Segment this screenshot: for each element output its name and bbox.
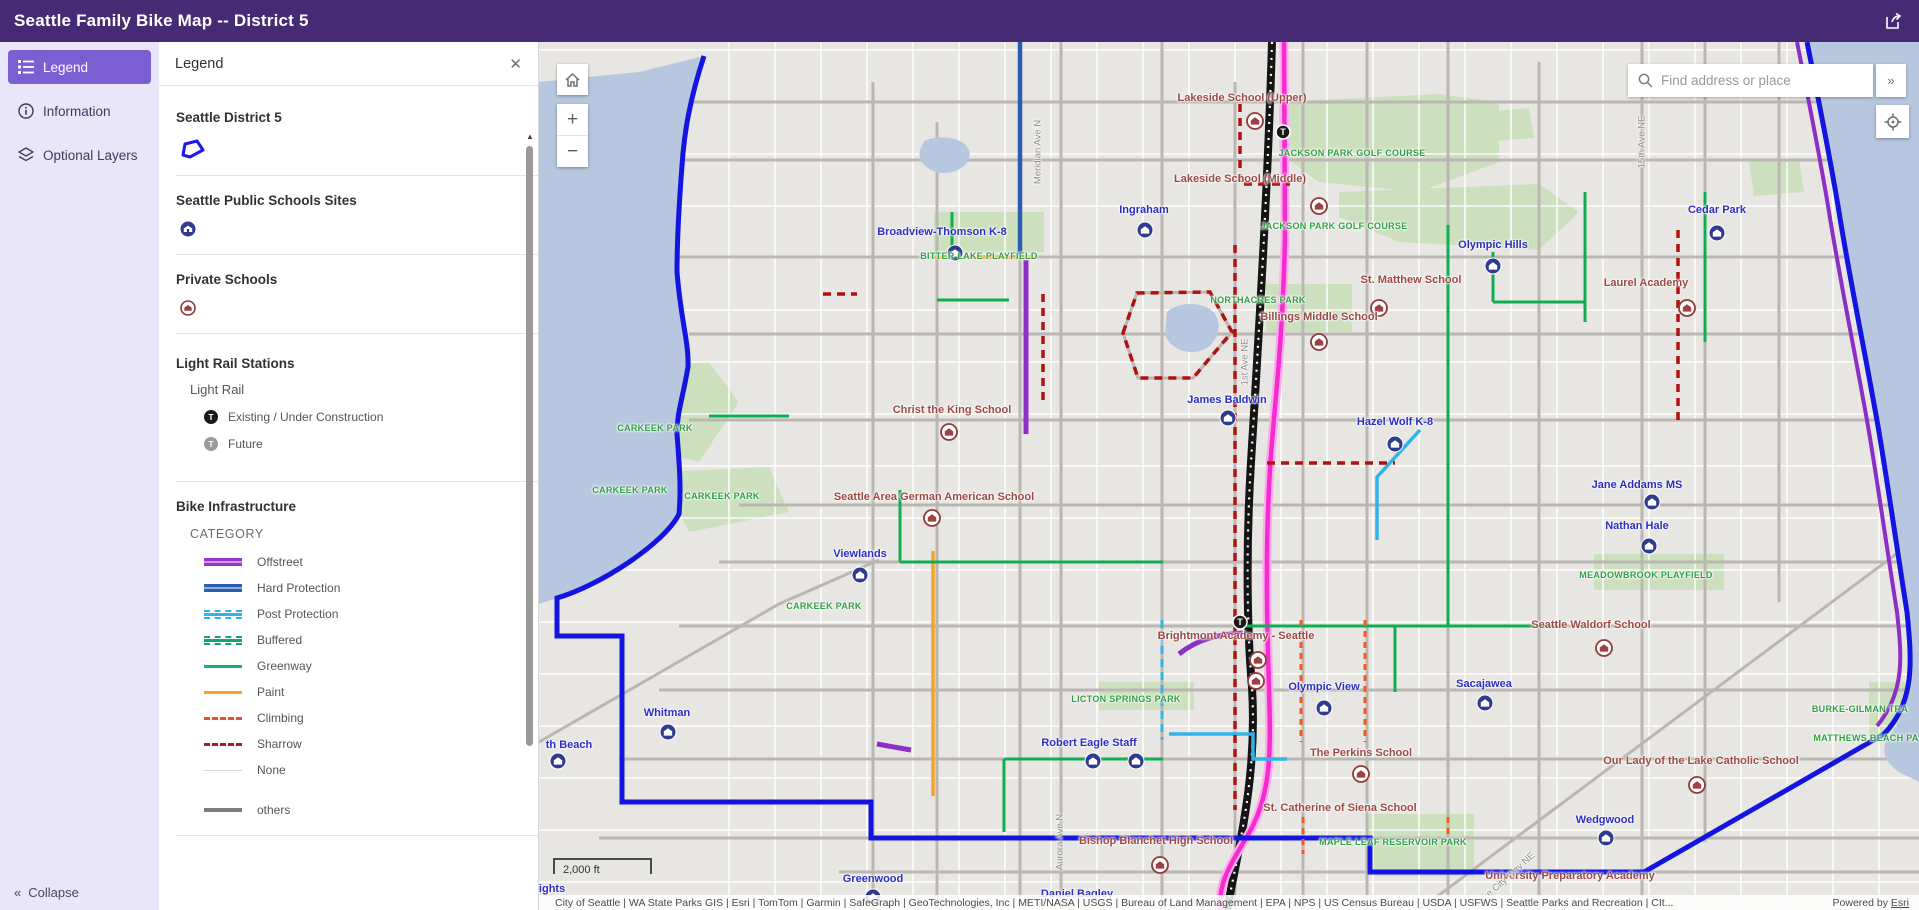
major-road — [1419, 537, 1919, 910]
legend-item-buffered: Buffered — [204, 627, 538, 653]
legend-item-label: Post Protection — [257, 607, 338, 621]
legend-list-icon — [18, 60, 34, 74]
park-area — [1339, 184, 1579, 250]
station-existing-icon: T — [204, 410, 218, 424]
home-icon — [564, 72, 581, 88]
station-future-icon: T — [204, 437, 218, 451]
sidebar-item-information[interactable]: Information — [8, 94, 151, 128]
zoom-out-button[interactable]: − — [557, 136, 588, 167]
line-swatch — [204, 717, 242, 720]
category-field-label: CATEGORY — [190, 527, 538, 541]
public-school-marker[interactable] — [1644, 494, 1660, 510]
private-school-marker[interactable] — [1152, 857, 1168, 873]
district-swatch — [180, 138, 538, 165]
legend-section-heading: Bike Infrastructure — [176, 499, 538, 514]
close-icon[interactable]: ✕ — [509, 55, 522, 73]
public-school-marker[interactable] — [1220, 410, 1236, 426]
search-input[interactable] — [1661, 73, 1851, 88]
park-area — [1367, 814, 1474, 876]
info-icon — [18, 103, 34, 119]
line-swatch — [204, 743, 242, 746]
divider — [176, 333, 538, 334]
sidebar-item-legend[interactable]: Legend — [8, 50, 151, 84]
park-area — [1479, 108, 1534, 142]
locate-button[interactable] — [1876, 105, 1909, 138]
powered-by: Powered by Esri — [1833, 897, 1909, 909]
legend-panel: Legend ✕ Seattle District 5 Seattle Publ… — [159, 42, 539, 910]
route-boundary — [557, 56, 1884, 872]
private-school-marker[interactable] — [1247, 113, 1263, 129]
legend-item-future: T Future — [204, 437, 538, 451]
legend-item-label: Hard Protection — [257, 581, 340, 595]
search-bar: » — [1628, 64, 1906, 97]
line-swatch — [204, 636, 242, 645]
legend-item-post-protection: Post Protection — [204, 601, 538, 627]
legend-item-greenway: Greenway — [204, 653, 538, 679]
layers-icon — [18, 147, 34, 163]
public-school-marker[interactable] — [1128, 753, 1144, 769]
light-rail-station-marker[interactable]: T — [1276, 125, 1290, 139]
legend-section-district: Seattle District 5 — [159, 110, 538, 176]
legend-item-existing: T Existing / Under Construction — [204, 410, 538, 424]
legend-section-heading: Private Schools — [176, 272, 538, 287]
legend-item-label: Sharrow — [257, 737, 302, 751]
public-school-marker[interactable] — [1137, 222, 1153, 238]
line-swatch — [204, 691, 242, 694]
zoom-controls: + − — [557, 104, 588, 167]
private-school-marker[interactable] — [1679, 300, 1695, 316]
legend-item-others: others — [204, 797, 538, 823]
attribution-bar: City of Seattle | WA State Parks GIS | E… — [539, 895, 1919, 910]
sidebar-item-optional-layers[interactable]: Optional Layers — [8, 138, 151, 172]
legend-item-offstreet: Offstreet — [204, 549, 538, 575]
map-canvas[interactable]: TT Lakeside School (Upper)JACKSON PARK G… — [539, 42, 1919, 910]
divider — [176, 254, 538, 255]
panel-scrollbar[interactable]: ▲ ▼ — [524, 132, 536, 910]
light-rail-station-marker[interactable]: T — [1233, 615, 1247, 629]
public-school-marker[interactable] — [947, 245, 963, 261]
legend-item-climbing: Climbing — [204, 705, 538, 731]
divider — [176, 481, 538, 482]
divider — [176, 835, 538, 836]
route-offstreet — [877, 744, 911, 750]
private-school-marker[interactable] — [941, 424, 957, 440]
public-school-marker[interactable] — [1485, 258, 1501, 274]
water-area — [1165, 304, 1219, 352]
legend-item-label: None — [257, 763, 286, 777]
share-icon[interactable] — [1883, 10, 1905, 32]
legend-panel-body: Seattle District 5 Seattle Public School… — [159, 86, 538, 910]
legend-section-public-schools: Seattle Public Schools Sites — [159, 193, 538, 255]
public-school-marker[interactable] — [1316, 700, 1332, 716]
public-school-marker[interactable] — [550, 753, 566, 769]
private-school-marker[interactable] — [1371, 300, 1387, 316]
legend-item-label: Offstreet — [257, 555, 303, 569]
private-school-marker[interactable] — [924, 510, 940, 526]
scale-bar-label: 2,000 ft — [555, 864, 600, 876]
line-swatch — [204, 770, 242, 771]
public-school-marker[interactable] — [1709, 225, 1725, 241]
water-area — [1807, 42, 1919, 782]
light-rail-sublayer-label: Light Rail — [190, 382, 538, 397]
home-button[interactable] — [557, 64, 588, 95]
sidebar-item-label: Information — [43, 104, 111, 119]
legend-item-label: others — [257, 803, 290, 817]
water-area — [919, 137, 969, 173]
svg-text:T: T — [1280, 127, 1286, 137]
legend-item-sharrow: Sharrow — [204, 731, 538, 757]
public-school-marker[interactable] — [1085, 753, 1101, 769]
divider — [176, 175, 538, 176]
line-swatch — [204, 808, 242, 812]
zoom-in-button[interactable]: + — [557, 104, 588, 135]
legend-section-private-schools: Private Schools — [159, 272, 538, 334]
sidebar-item-label: Legend — [43, 60, 88, 75]
line-swatch — [204, 610, 242, 619]
legend-item-label: Paint — [257, 685, 284, 699]
private-school-marker[interactable] — [1311, 198, 1327, 214]
legend-panel-title: Legend — [175, 56, 223, 72]
legend-section-heading: Seattle Public Schools Sites — [176, 193, 538, 208]
legend-item-none: None — [204, 757, 538, 783]
private-school-icon — [180, 300, 538, 321]
park-area — [1099, 682, 1194, 710]
line-swatch — [204, 584, 242, 592]
public-school-marker[interactable] — [1477, 695, 1493, 711]
search-expand-button[interactable]: » — [1876, 64, 1906, 97]
search-icon — [1638, 73, 1653, 88]
park-area — [1279, 94, 1499, 192]
legend-item-label: Buffered — [257, 633, 302, 647]
public-school-marker[interactable] — [1387, 436, 1403, 452]
legend-section-heading: Light Rail Stations — [176, 356, 538, 371]
scale-bar: 2,000 ft — [553, 858, 652, 874]
public-school-marker[interactable] — [852, 567, 868, 583]
line-swatch — [204, 665, 242, 668]
public-school-marker[interactable] — [1598, 830, 1614, 846]
collapse-icon: « — [14, 885, 21, 900]
sidebar-item-label: Optional Layers — [43, 148, 138, 163]
line-swatch — [204, 558, 242, 566]
scrollbar-thumb[interactable] — [526, 146, 533, 746]
locate-icon — [1884, 113, 1902, 131]
private-school-marker[interactable] — [1689, 777, 1705, 793]
legend-panel-header: Legend ✕ — [159, 42, 538, 86]
attribution-text: City of Seattle | WA State Parks GIS | E… — [555, 897, 1673, 909]
esri-link[interactable]: Esri — [1891, 897, 1909, 909]
private-school-marker[interactable] — [1248, 673, 1264, 689]
legend-section-light-rail: Light Rail Stations Light Rail T Existin… — [159, 356, 538, 482]
legend-item-label: Greenway — [257, 659, 312, 673]
legend-section-heading: Seattle District 5 — [176, 110, 538, 125]
legend-item-label: Climbing — [257, 711, 304, 725]
private-school-marker[interactable] — [1250, 652, 1266, 668]
public-school-marker[interactable] — [1641, 538, 1657, 554]
public-school-icon — [180, 221, 538, 242]
app-window: Seattle Family Bike Map -- District 5 Le… — [0, 0, 1919, 910]
app-header: Seattle Family Bike Map -- District 5 — [0, 0, 1919, 42]
private-school-marker[interactable] — [1311, 334, 1327, 350]
bike-category-list: OffstreetHard ProtectionPost ProtectionB… — [176, 549, 538, 823]
search-box[interactable] — [1628, 64, 1873, 97]
legend-item-paint: Paint — [204, 679, 538, 705]
public-school-marker[interactable] — [660, 724, 676, 740]
left-sidebar: Legend Information Optional Layers « Col… — [0, 42, 159, 910]
page-title: Seattle Family Bike Map -- District 5 — [14, 11, 309, 31]
legend-item-hard-protection: Hard Protection — [204, 575, 538, 601]
scroll-up-icon[interactable]: ▲ — [524, 132, 536, 141]
map-graphics: TT — [539, 42, 1919, 910]
private-school-marker[interactable] — [1596, 640, 1612, 656]
legend-section-bike-infrastructure: Bike Infrastructure CATEGORY OffstreetHa… — [159, 499, 538, 836]
private-school-marker[interactable] — [1353, 766, 1369, 782]
collapse-button[interactable]: « Collapse — [14, 885, 79, 900]
park-area — [1749, 158, 1804, 196]
svg-text:T: T — [1237, 617, 1243, 627]
